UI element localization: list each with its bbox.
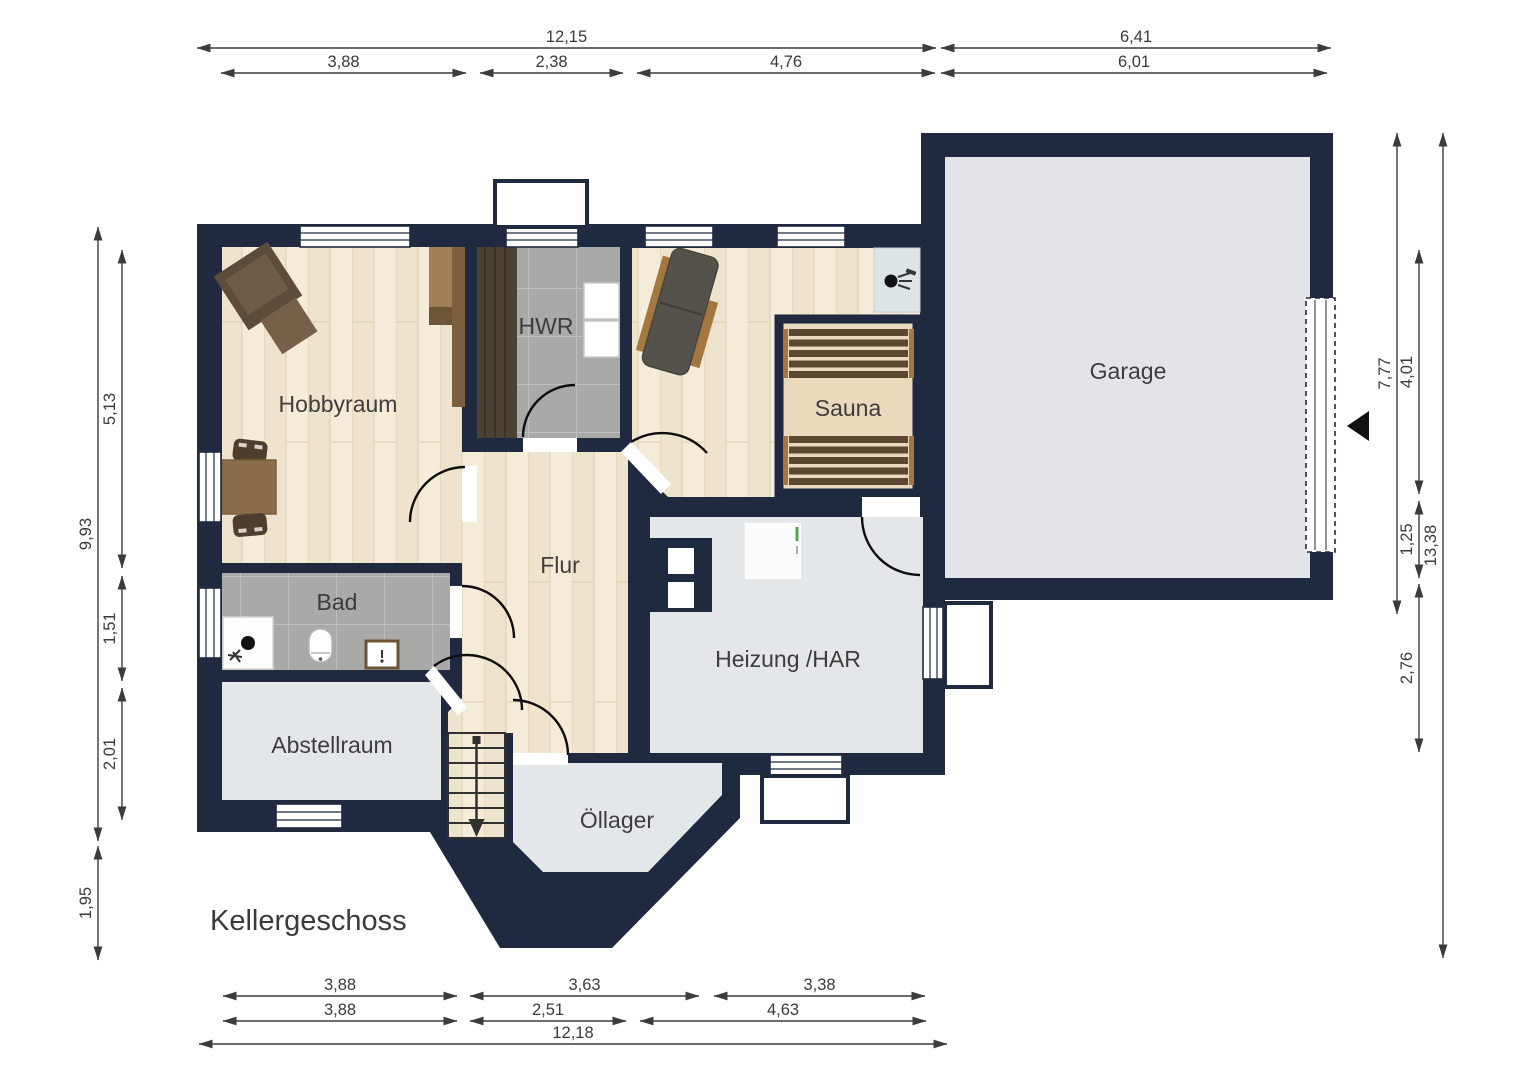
dimension-left_outer-0: 9,93 xyxy=(77,227,98,841)
dimension-right_mid-0: 4,01 xyxy=(1398,250,1419,494)
light-well xyxy=(762,776,848,822)
dimension-label: 7,77 xyxy=(1376,357,1394,389)
dimension-top_row1-0: 12,15 xyxy=(197,28,936,48)
dimension-label: 9,93 xyxy=(77,518,95,550)
dimension-label: 3,63 xyxy=(568,976,600,994)
room-label-hwr: HWR xyxy=(519,313,574,339)
room-label-oellager: Öllager xyxy=(580,807,654,833)
window xyxy=(506,226,578,247)
dimension-bottom_row3-0: 12,18 xyxy=(199,1024,947,1044)
dimension-bottom_row2-0: 3,88 xyxy=(223,1001,457,1021)
room-label-abstellraum: Abstellraum xyxy=(271,732,392,758)
chimney xyxy=(648,538,712,612)
dimension-label: 2,76 xyxy=(1398,652,1416,684)
dimension-bottom_row1-0: 3,88 xyxy=(223,976,457,996)
dimension-label: 12,18 xyxy=(552,1024,593,1042)
shower xyxy=(874,248,920,312)
entrance-arrow-icon xyxy=(1347,411,1369,441)
dimension-left_inner-1: 1,51 xyxy=(101,576,122,681)
dimension-label: 5,13 xyxy=(101,393,119,425)
dimension-left_inner-0: 5,13 xyxy=(101,250,122,568)
dimension-bottom_row1-1: 3,63 xyxy=(470,976,699,996)
washbasin xyxy=(366,641,398,668)
dimension-label: 3,88 xyxy=(327,53,359,71)
dimension-label: 1,95 xyxy=(77,887,95,919)
dimension-label: 4,01 xyxy=(1398,356,1416,388)
dimension-label: 2,01 xyxy=(101,738,119,770)
dryer xyxy=(584,321,619,357)
dimension-top_row2-0: 3,88 xyxy=(221,53,466,73)
window xyxy=(276,804,342,828)
dimension-label: 2,51 xyxy=(532,1001,564,1019)
dimension-top_row2-3: 6,01 xyxy=(941,53,1327,73)
light-well xyxy=(495,181,587,227)
room-label-sauna: Sauna xyxy=(815,395,882,421)
wardrobe xyxy=(477,247,517,438)
shower-tray xyxy=(223,617,273,669)
dimension-label: 6,41 xyxy=(1120,28,1152,46)
window xyxy=(770,755,842,775)
page-title: Kellergeschoss xyxy=(210,905,407,937)
dimension-label: 1,25 xyxy=(1398,523,1416,555)
room-label-heizung: Heizung /HAR xyxy=(715,646,861,672)
window xyxy=(199,588,221,658)
dimension-label: 3,88 xyxy=(324,1001,356,1019)
window xyxy=(199,452,221,522)
window xyxy=(300,226,410,247)
room-label-hobbyraum: Hobbyraum xyxy=(279,391,398,417)
dimension-left_inner-2: 2,01 xyxy=(101,688,122,820)
room-label-garage: Garage xyxy=(1090,358,1167,384)
window xyxy=(923,607,943,679)
dimension-right_outer-0: 13,38 xyxy=(1422,133,1443,958)
dimension-label: 13,38 xyxy=(1422,525,1440,566)
dimension-bottom_row2-1: 2,51 xyxy=(470,1001,626,1021)
window xyxy=(777,226,845,247)
chair xyxy=(232,513,268,538)
light-well xyxy=(945,603,991,687)
shower-head-icon xyxy=(885,275,898,288)
dimension-label: 12,15 xyxy=(546,28,587,46)
dining-table xyxy=(222,460,276,514)
dimension-label: 3,88 xyxy=(324,976,356,994)
dimension-label: 6,01 xyxy=(1118,53,1150,71)
dimension-label: 1,51 xyxy=(101,612,119,644)
dimension-bottom_row2-2: 4,63 xyxy=(640,1001,926,1021)
toilet xyxy=(309,629,332,662)
dimension-label: 4,63 xyxy=(767,1001,799,1019)
floorplan-page: Hobbyraum HWR Sauna Garage Bad Flur Heiz… xyxy=(0,0,1527,1080)
floorplan-canvas: Hobbyraum HWR Sauna Garage Bad Flur Heiz… xyxy=(0,0,1527,1080)
dimension-bottom_row1-2: 3,38 xyxy=(714,976,925,996)
dimension-label: 4,76 xyxy=(770,53,802,71)
dimension-label: 3,38 xyxy=(803,976,835,994)
garage-door xyxy=(1306,298,1335,552)
dimension-top_row1-1: 6,41 xyxy=(941,28,1331,48)
boiler xyxy=(744,522,802,580)
washer xyxy=(584,283,619,319)
window xyxy=(645,226,713,247)
dimension-top_row2-2: 4,76 xyxy=(637,53,935,73)
dimension-right_mid-2: 2,76 xyxy=(1398,584,1419,752)
dimension-label: 2,38 xyxy=(535,53,567,71)
dimension-top_row2-1: 2,38 xyxy=(480,53,623,73)
room-label-flur: Flur xyxy=(540,552,580,578)
dimension-left_outer-1: 1,95 xyxy=(77,846,98,960)
dimension-right_inner-0: 7,77 xyxy=(1376,133,1397,614)
room-label-bad: Bad xyxy=(317,589,358,615)
shower-head-icon xyxy=(241,636,255,650)
dimension-right_mid-1: 1,25 xyxy=(1398,501,1419,578)
